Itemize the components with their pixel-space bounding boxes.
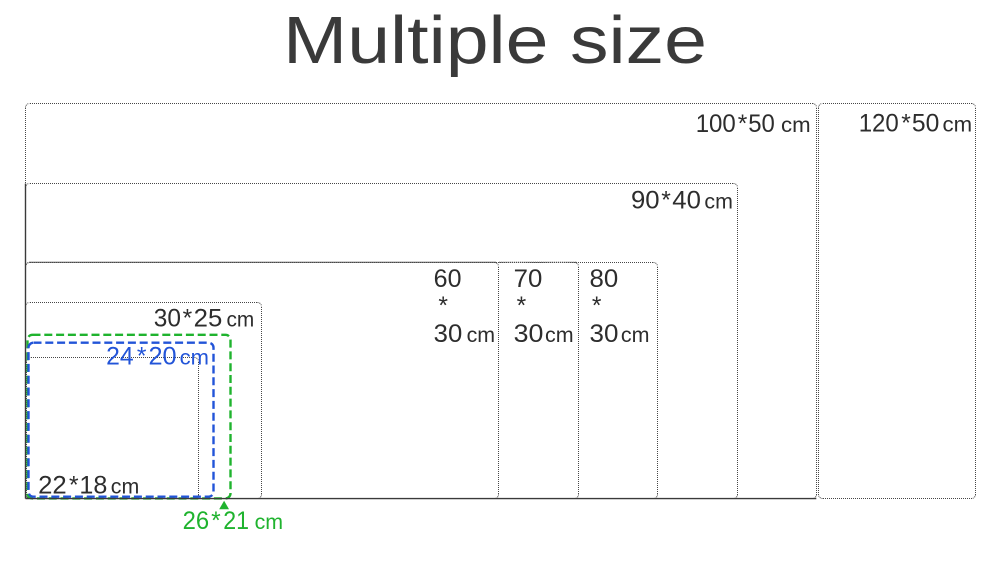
svg-text:cm: cm [545, 324, 574, 347]
svg-text:*: * [901, 111, 911, 138]
svg-text:cm: cm [621, 324, 650, 347]
svg-text:*: * [517, 293, 527, 320]
svg-text:30: 30 [514, 321, 544, 348]
svg-text:50: 50 [748, 111, 775, 138]
svg-text:70: 70 [514, 266, 543, 293]
svg-text:Multiple size: Multiple size [283, 4, 707, 78]
svg-text:*: * [438, 293, 448, 320]
svg-text:cm: cm [111, 476, 140, 499]
svg-text:*: * [69, 473, 79, 500]
svg-text:cm: cm [227, 309, 255, 332]
svg-text:26: 26 [183, 508, 210, 535]
svg-text:30: 30 [434, 321, 463, 348]
svg-text:cm: cm [781, 114, 811, 137]
svg-text:90: 90 [631, 188, 660, 215]
svg-text:40: 40 [672, 188, 701, 215]
svg-text:cm: cm [180, 347, 209, 370]
svg-text:60: 60 [434, 266, 462, 293]
svg-text:22: 22 [38, 473, 67, 500]
svg-text:21: 21 [223, 508, 249, 535]
svg-text:25: 25 [194, 306, 223, 333]
svg-text:*: * [661, 188, 671, 215]
svg-text:120: 120 [859, 111, 899, 138]
svg-text:50: 50 [912, 111, 939, 138]
svg-text:20: 20 [149, 344, 177, 371]
svg-text:*: * [738, 111, 748, 138]
svg-text:cm: cm [704, 191, 733, 214]
svg-text:*: * [592, 293, 602, 320]
svg-text:80: 80 [590, 266, 619, 293]
svg-text:*: * [211, 508, 221, 535]
svg-text:cm: cm [255, 511, 284, 534]
svg-text:*: * [183, 306, 193, 333]
svg-text:cm: cm [943, 114, 973, 137]
svg-text:18: 18 [79, 473, 107, 500]
svg-text:100: 100 [696, 111, 736, 138]
svg-text:30: 30 [154, 306, 181, 333]
svg-text:30: 30 [590, 321, 619, 348]
svg-text:24: 24 [106, 344, 134, 371]
svg-text:cm: cm [467, 324, 496, 347]
svg-text:*: * [137, 344, 147, 371]
